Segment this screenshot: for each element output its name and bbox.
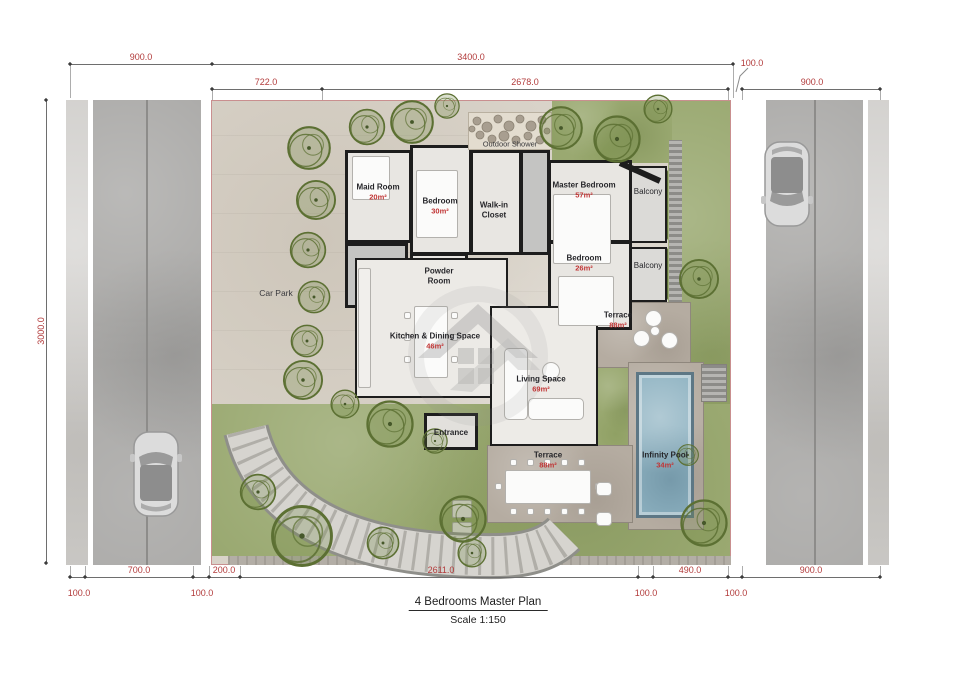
right-road-centerline	[814, 100, 816, 565]
dim-bottom-100-d: 100.0	[725, 588, 748, 598]
chair	[544, 508, 551, 515]
stepping-stone	[452, 544, 472, 558]
chair	[527, 508, 534, 515]
chair	[495, 483, 502, 490]
plan-scale: Scale 1:150	[409, 614, 548, 626]
stepping-stone	[452, 522, 472, 540]
label-entrance: Entrance	[434, 428, 468, 438]
stepping-stone	[452, 500, 472, 518]
terrace-chair-3	[661, 332, 678, 349]
chair	[451, 312, 458, 319]
room-balcony-1	[630, 166, 667, 243]
kitchen-counter	[358, 268, 371, 388]
right-road-sidewalk	[868, 100, 889, 565]
dim-top-right-900: 900.0	[801, 77, 824, 87]
plan-title: 4 Bedrooms Master Plan	[409, 596, 548, 611]
left-road-centerline	[146, 100, 148, 565]
label-bedroom-26: Bedroom26m²	[566, 254, 601, 273]
label-terrace-upper: Terrace88m²	[604, 311, 632, 330]
terrace-chair-2	[633, 330, 650, 347]
label-terrace-lower: Terrace88m²	[534, 451, 562, 470]
chair	[578, 508, 585, 515]
dim-bottom-100-b: 100.0	[191, 588, 214, 598]
chair	[510, 459, 517, 466]
label-outdoor-shower: Outdoor Shower	[483, 140, 538, 149]
label-bedroom-30: Bedroom30m²	[422, 197, 457, 216]
dim-top-100: 100.0	[741, 58, 764, 68]
chair	[451, 356, 458, 363]
dim-top-3400: 3400.0	[457, 52, 485, 62]
dim-bottom-2611: 2611.0	[428, 565, 455, 575]
terrace-table	[650, 326, 660, 336]
lounge-chair-1	[596, 482, 612, 496]
chair	[561, 508, 568, 515]
dim-bottom-100-c: 100.0	[635, 588, 658, 598]
dim-bottom-490: 490.0	[679, 565, 702, 575]
label-infinity-pool: Infinity Pool34m²	[642, 451, 688, 470]
dim-top-900: 900.0	[130, 52, 153, 62]
master-plan-canvas: Maid Room20m² Bedroom30m² Walk-in Closet…	[0, 0, 955, 675]
label-balcony-2: Balcony	[634, 261, 662, 271]
dim-bottom-200: 200.0	[213, 565, 236, 575]
label-balcony-1: Balcony	[634, 187, 662, 197]
label-walkin-closet: Walk-in Closet	[468, 200, 520, 219]
lounge-chair-2	[596, 512, 612, 526]
chair	[510, 508, 517, 515]
grass-top-right	[552, 101, 672, 163]
dining-table-terrace	[505, 470, 591, 504]
retaining-wall	[228, 556, 731, 565]
label-maid-room: Maid Room20m²	[356, 183, 399, 202]
pool-steps	[701, 364, 727, 402]
dim-top-722: 722.0	[255, 77, 278, 87]
terrace-chair-1	[645, 310, 662, 327]
left-road-sidewalk	[66, 100, 88, 565]
room-balcony-2	[630, 247, 667, 302]
label-car-park: Car Park	[259, 288, 293, 298]
dim-bottom-700: 700.0	[128, 565, 151, 575]
dim-bottom-900: 900.0	[800, 565, 823, 575]
label-living-space: Living Space69m²	[516, 375, 565, 394]
chair	[404, 312, 411, 319]
room-bath-2	[520, 150, 550, 255]
chair	[578, 459, 585, 466]
dim-left-3000: 3000.0	[36, 317, 46, 345]
sofa-living-horizontal	[528, 398, 584, 420]
dim-bottom-100-a: 100.0	[68, 588, 91, 598]
dim-top-2678: 2678.0	[511, 77, 539, 87]
label-powder-room: Powder Room	[413, 266, 465, 285]
label-kitchen-dining: Kitchen & Dining Space46m²	[390, 332, 480, 351]
chair	[404, 356, 411, 363]
label-master-bedroom: Master Bedroom57m²	[552, 181, 615, 200]
title-block: 4 Bedrooms Master Plan Scale 1:150	[409, 596, 548, 626]
infinity-pool-water	[636, 372, 694, 518]
